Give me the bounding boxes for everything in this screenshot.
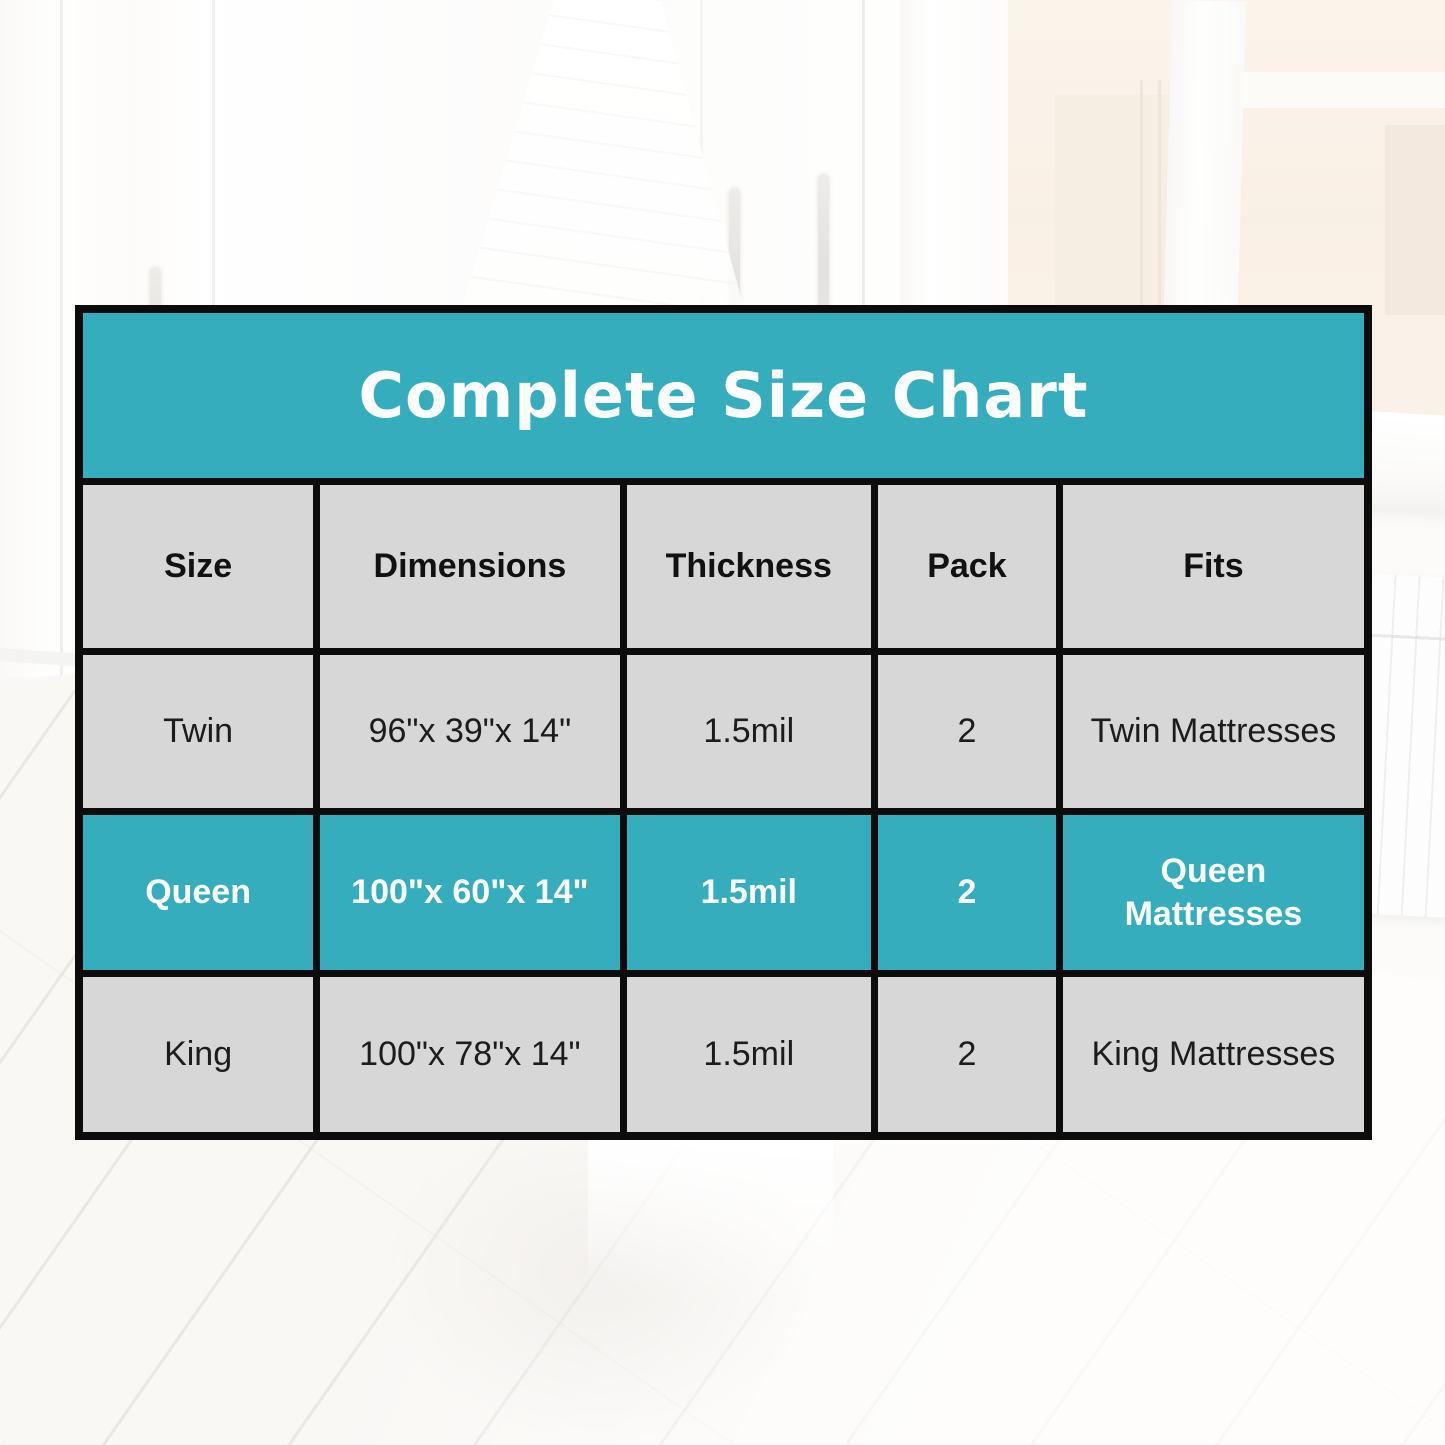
header-cell-size: Size [83,485,313,648]
header-cell-thickness: Thickness [627,485,871,648]
cell-twin-size: Twin [83,655,313,808]
table-row-queen-highlighted: Queen 100"x 60"x 14" 1.5mil 2 Queen Matt… [83,815,1364,970]
building-window [1385,125,1445,315]
mattress-foot [588,1140,833,1300]
cell-twin-fits: Twin Mattresses [1063,655,1364,808]
cell-queen-fits: Queen Mattresses [1063,815,1364,970]
building-window [1055,95,1175,330]
cell-queen-pack: 2 [878,815,1056,970]
cell-queen-dimensions: 100"x 60"x 14" [320,815,619,970]
product-infographic: Complete Size Chart Size Dimensions Thic… [0,0,1445,1445]
cell-king-thickness: 1.5mil [627,977,871,1132]
header-cell-pack: Pack [878,485,1056,648]
building-facade-band [1230,72,1445,108]
cell-twin-dimensions: 96"x 39"x 14" [320,655,619,808]
balcony-railing [1140,80,1245,335]
cell-king-pack: 2 [878,977,1056,1132]
header-row: Size Dimensions Thickness Pack Fits [83,485,1364,648]
cell-queen-size: Queen [83,815,313,970]
title-row: Complete Size Chart [83,313,1364,478]
header-cell-dimensions: Dimensions [320,485,619,648]
cell-twin-pack: 2 [878,655,1056,808]
cell-king-dimensions: 100"x 78"x 14" [320,977,619,1132]
cell-queen-thickness: 1.5mil [627,815,871,970]
size-chart-table: Complete Size Chart Size Dimensions Thic… [75,305,1372,1140]
wardrobe-door-seam [60,0,63,688]
chart-title: Complete Size Chart [83,313,1364,478]
cell-king-size: King [83,977,313,1132]
cell-twin-thickness: 1.5mil [627,655,871,808]
table-row-twin: Twin 96"x 39"x 14" 1.5mil 2 Twin Mattres… [83,655,1364,808]
header-cell-fits: Fits [1063,485,1364,648]
bed-shadow [380,1100,820,1445]
table-row-king: King 100"x 78"x 14" 1.5mil 2 King Mattre… [83,977,1364,1132]
cell-king-fits: King Mattresses [1063,977,1364,1132]
